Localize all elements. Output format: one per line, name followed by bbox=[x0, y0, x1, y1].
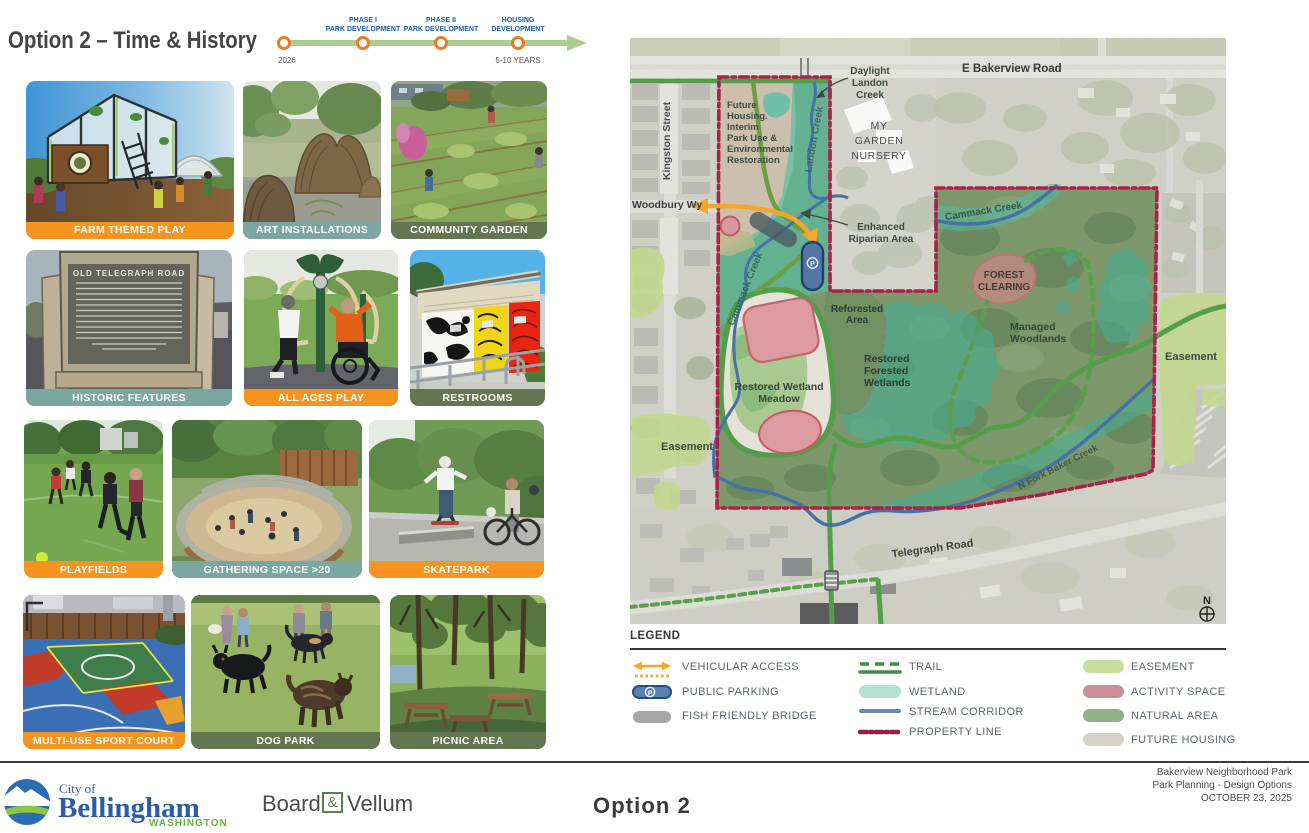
svg-text:Future: Future bbox=[727, 100, 757, 111]
svg-text:E Bakerview Road: E Bakerview Road bbox=[962, 63, 1062, 75]
svg-text:Area: Area bbox=[846, 315, 869, 326]
svg-text:Kingston Street: Kingston Street bbox=[661, 101, 673, 180]
svg-text:2026: 2026 bbox=[278, 56, 296, 65]
svg-text:Restoration: Restoration bbox=[727, 155, 780, 166]
svg-text:Woodlands: Woodlands bbox=[1010, 333, 1067, 345]
svg-text:CLEARING: CLEARING bbox=[978, 282, 1030, 293]
svg-text:Landon: Landon bbox=[852, 78, 888, 89]
svg-text:PARK DEVELOPMENT: PARK DEVELOPMENT bbox=[404, 26, 479, 33]
svg-text:WASHINGTON: WASHINGTON bbox=[149, 818, 228, 829]
svg-text:GARDEN: GARDEN bbox=[855, 135, 904, 147]
svg-text:Easement: Easement bbox=[1165, 351, 1217, 363]
svg-text:DEVELOPMENT: DEVELOPMENT bbox=[491, 26, 545, 33]
svg-text:Forested: Forested bbox=[864, 365, 908, 377]
svg-text:Reforested: Reforested bbox=[831, 304, 883, 315]
svg-text:Daylight: Daylight bbox=[850, 66, 890, 77]
svg-text:N: N bbox=[1203, 595, 1211, 607]
svg-text:PARK DEVELOPMENT: PARK DEVELOPMENT bbox=[326, 26, 401, 33]
svg-text:Easement: Easement bbox=[661, 441, 713, 453]
svg-text:Restored: Restored bbox=[864, 353, 910, 365]
svg-text:PHASE II: PHASE II bbox=[426, 17, 456, 24]
svg-text:Managed: Managed bbox=[1010, 321, 1056, 333]
svg-text:NURSERY: NURSERY bbox=[851, 150, 906, 162]
svg-text:PHASE I: PHASE I bbox=[349, 17, 377, 24]
svg-text:P: P bbox=[648, 690, 653, 697]
svg-text:Woodbury Wy: Woodbury Wy bbox=[632, 199, 702, 211]
svg-text:Housing.: Housing. bbox=[727, 111, 768, 122]
svg-text:Enhanced: Enhanced bbox=[857, 222, 905, 233]
svg-text:HOUSING: HOUSING bbox=[502, 17, 535, 24]
svg-text:MY: MY bbox=[871, 120, 888, 132]
svg-text:Restored Wetland: Restored Wetland bbox=[734, 381, 823, 393]
svg-text:Riparian Area: Riparian Area bbox=[849, 234, 914, 245]
svg-text:FOREST: FOREST bbox=[984, 270, 1025, 281]
svg-text:Wetlands: Wetlands bbox=[864, 377, 911, 389]
svg-text:OLD TELEGRAPH ROAD: OLD TELEGRAPH ROAD bbox=[73, 269, 185, 278]
svg-text:Creek: Creek bbox=[856, 90, 884, 101]
svg-text:Park Use &: Park Use & bbox=[727, 133, 777, 144]
svg-text:Meadow: Meadow bbox=[758, 393, 800, 405]
svg-text:5-10 YEARS: 5-10 YEARS bbox=[495, 56, 540, 65]
svg-text:Interim: Interim bbox=[727, 122, 759, 133]
svg-text:Environmental: Environmental bbox=[727, 144, 793, 155]
